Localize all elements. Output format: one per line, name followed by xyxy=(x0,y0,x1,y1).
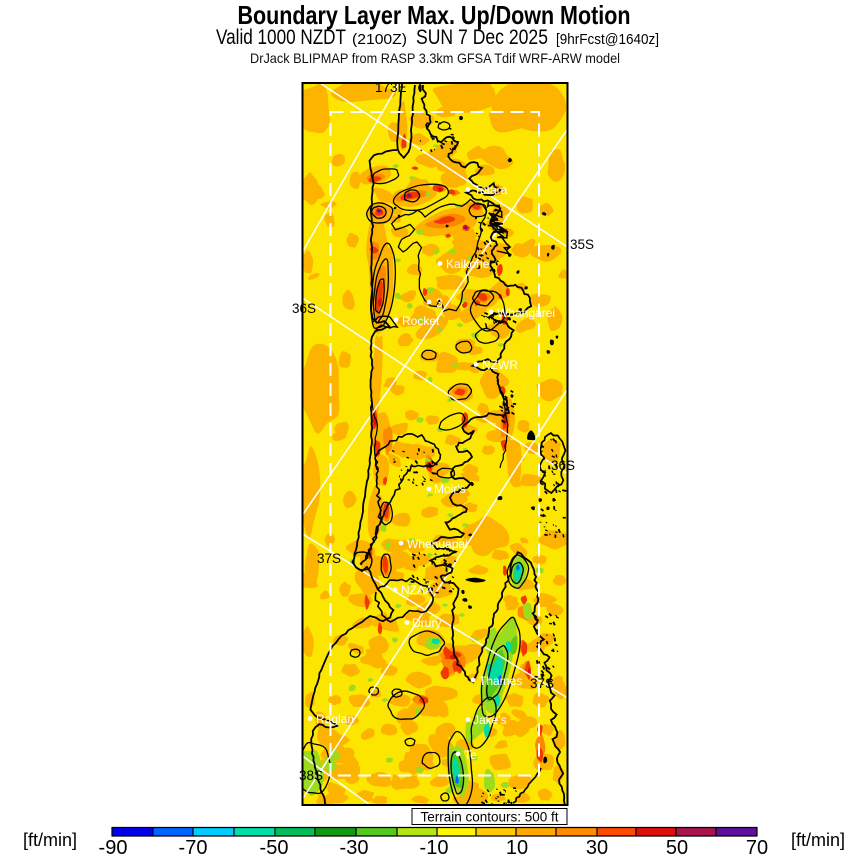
svg-text:-70: -70 xyxy=(179,837,208,859)
svg-text:-50: -50 xyxy=(260,837,289,859)
svg-text:NZWR: NZWR xyxy=(482,358,518,372)
svg-text:[ft/min]: [ft/min] xyxy=(23,830,77,850)
svg-text:3: 3 xyxy=(436,296,443,310)
svg-text:Drury: Drury xyxy=(412,616,441,630)
svg-text:Kaikohe: Kaikohe xyxy=(446,257,490,271)
svg-text:NZAA: NZAA xyxy=(401,583,433,597)
svg-text:70: 70 xyxy=(746,837,768,859)
svg-text:37S: 37S xyxy=(317,551,341,566)
svg-text:-30: -30 xyxy=(340,837,369,859)
svg-text:36S: 36S xyxy=(292,301,316,316)
svg-text:Rocket: Rocket xyxy=(402,314,440,328)
svg-text:36S: 36S xyxy=(551,458,575,473)
svg-text:Whenuapai: Whenuapai xyxy=(407,537,468,551)
svg-text:Whangarei: Whangarei xyxy=(497,306,555,320)
svg-text:10: 10 xyxy=(506,837,528,859)
svg-text:Totara: Totara xyxy=(474,183,508,197)
svg-text:Thames: Thames xyxy=(479,674,522,688)
svg-text:-10: -10 xyxy=(420,837,449,859)
svg-text:30: 30 xyxy=(586,837,608,859)
svg-text:173E: 173E xyxy=(375,80,407,95)
svg-text:Te: Te xyxy=(464,748,477,762)
svg-text:-90: -90 xyxy=(99,837,128,859)
svg-text:50: 50 xyxy=(666,837,688,859)
svg-text:38S: 38S xyxy=(299,768,323,783)
svg-text:35S: 35S xyxy=(570,237,594,252)
svg-text:Valid 1000 NZDT: Valid 1000 NZDT xyxy=(216,26,346,49)
svg-text:[ft/min]: [ft/min] xyxy=(791,830,845,850)
svg-text:SUN 7 Dec 2025: SUN 7 Dec 2025 xyxy=(416,26,548,49)
svg-text:Raglan: Raglan xyxy=(316,712,354,726)
svg-text:(2100Z): (2100Z) xyxy=(352,31,407,48)
svg-text:37S: 37S xyxy=(530,676,554,691)
svg-text:Terrain contours: 500 ft: Terrain contours: 500 ft xyxy=(420,810,558,825)
svg-text:Moir's: Moir's xyxy=(434,482,466,496)
svg-text:[9hrFcst@1640z]: [9hrFcst@1640z] xyxy=(556,31,659,48)
svg-text:DrJack BLIPMAP from RASP 3.3km: DrJack BLIPMAP from RASP 3.3km GFSA Tdif… xyxy=(250,50,620,66)
svg-text:Jake's: Jake's xyxy=(473,713,507,727)
